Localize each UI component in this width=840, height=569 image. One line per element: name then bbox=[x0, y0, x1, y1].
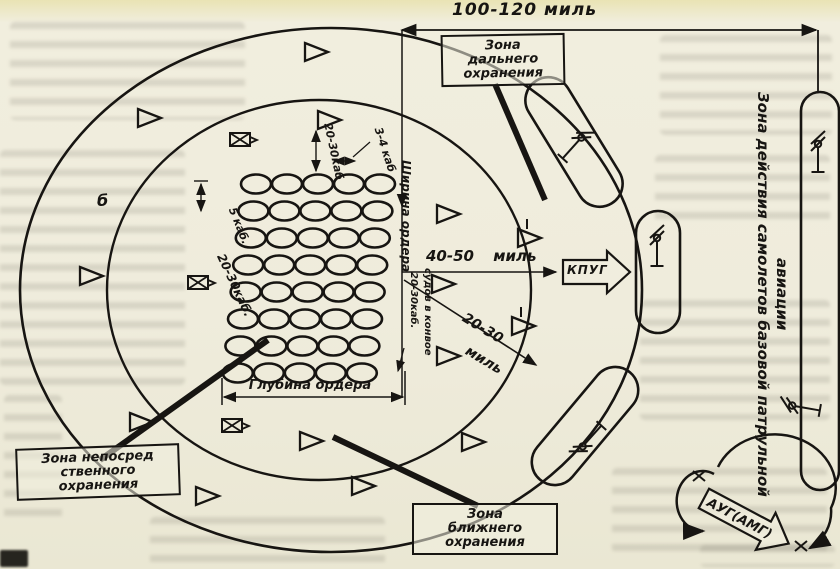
escort-ship-triangle bbox=[352, 477, 375, 495]
transport-ship-marker bbox=[287, 337, 317, 356]
transport-ship-marker bbox=[326, 256, 356, 275]
far-zone-line3: охранения bbox=[447, 66, 559, 82]
inner-guard-circle bbox=[107, 100, 531, 480]
patrol-racetrack-far-right bbox=[801, 92, 839, 490]
transport-ship-marker bbox=[241, 175, 271, 194]
transport-ship-marker bbox=[321, 310, 351, 329]
patrol-racetrack-bottom bbox=[522, 358, 647, 495]
transport-ship-marker bbox=[295, 256, 325, 275]
column-gap-arrow bbox=[398, 348, 404, 371]
transport-ship-marker bbox=[352, 310, 382, 329]
transport-ship-marker bbox=[303, 175, 333, 194]
transport-ship-marker bbox=[318, 337, 348, 356]
escort-ship-triangle bbox=[462, 433, 485, 451]
transport-ship-marker bbox=[324, 283, 354, 302]
escort-ship-triangle bbox=[512, 317, 535, 335]
order-width-label: Ширина ордера bbox=[399, 160, 413, 272]
transport-ship-marker bbox=[329, 229, 359, 248]
escort-ship-triangle bbox=[437, 347, 460, 365]
scanned-page: АУГ(АМГ) 100-120 миль Зона дальнего охра… bbox=[0, 0, 840, 569]
transport-ship-marker bbox=[259, 310, 289, 329]
column-gap-label: 20-30каб. bbox=[408, 272, 419, 328]
far-zone-box: Зона дальнего охранения bbox=[441, 33, 566, 87]
escort-ship-triangle bbox=[138, 109, 161, 127]
aviation-zone-label: Зона действия самолетов базовой патрульн… bbox=[754, 92, 772, 497]
transport-ship-marker bbox=[290, 310, 320, 329]
far-zone-leader bbox=[495, 84, 545, 200]
top-distance-label: 100-120 миль bbox=[452, 2, 597, 20]
immediate-zone-leader bbox=[100, 340, 268, 460]
escort-ship-triangle bbox=[80, 267, 103, 285]
transport-ship-marker bbox=[360, 229, 390, 248]
aviation-zone-label-tail: авиации bbox=[773, 258, 791, 330]
near-zone-line3: охранения bbox=[418, 536, 552, 550]
submarine-periscope-symbol bbox=[811, 131, 825, 172]
transport-ship-marker bbox=[262, 283, 292, 302]
near-zone-line1: Зона bbox=[418, 508, 552, 522]
submarine-periscope-symbol bbox=[778, 396, 821, 417]
near-zone-leader bbox=[333, 437, 478, 506]
mid-distance-label: 40-50 миль bbox=[426, 249, 536, 265]
escort-ship-triangle bbox=[432, 275, 455, 293]
transport-ship-marker bbox=[365, 175, 395, 194]
submarine-periscope-symbol bbox=[650, 225, 664, 266]
escort-ship-triangle bbox=[196, 487, 219, 505]
immediate-zone-box: Зона непосред ственного охранения bbox=[15, 443, 181, 501]
guard-ship-symbol bbox=[188, 276, 215, 289]
transport-ship-marker bbox=[264, 256, 294, 275]
transport-ship-marker bbox=[293, 283, 323, 302]
figure-part-label: б bbox=[97, 193, 108, 210]
transport-ship-marker bbox=[349, 337, 379, 356]
transport-ship-marker bbox=[272, 175, 302, 194]
transport-ship-marker bbox=[233, 256, 263, 275]
escort-ship-triangle bbox=[437, 205, 460, 223]
transport-ship-marker bbox=[362, 202, 392, 221]
transport-ship-marker bbox=[298, 229, 328, 248]
transport-ship-marker bbox=[267, 229, 297, 248]
transport-ship-marker bbox=[355, 283, 385, 302]
near-zone-box: Зона ближнего охранения bbox=[412, 503, 558, 555]
escort-ship-triangle bbox=[300, 432, 323, 450]
transport-ship-marker bbox=[331, 202, 361, 221]
ship-gap-leader bbox=[353, 142, 370, 157]
transport-ship-marker bbox=[357, 256, 387, 275]
escort-ship-triangle bbox=[305, 43, 328, 61]
aug-course-arrow: АУГ(АМГ) bbox=[694, 480, 798, 562]
order-depth-label: Глубина ордера bbox=[235, 379, 385, 393]
transport-ship-marker bbox=[300, 202, 330, 221]
near-zone-line2: ближнего bbox=[418, 522, 552, 536]
column-gap-note: судов в конвое bbox=[422, 268, 433, 356]
transport-ship-marker bbox=[269, 202, 299, 221]
guard-ship-symbol bbox=[230, 133, 257, 146]
kpug-label: КПУГ bbox=[567, 264, 605, 277]
guard-ship-symbol bbox=[222, 419, 249, 432]
